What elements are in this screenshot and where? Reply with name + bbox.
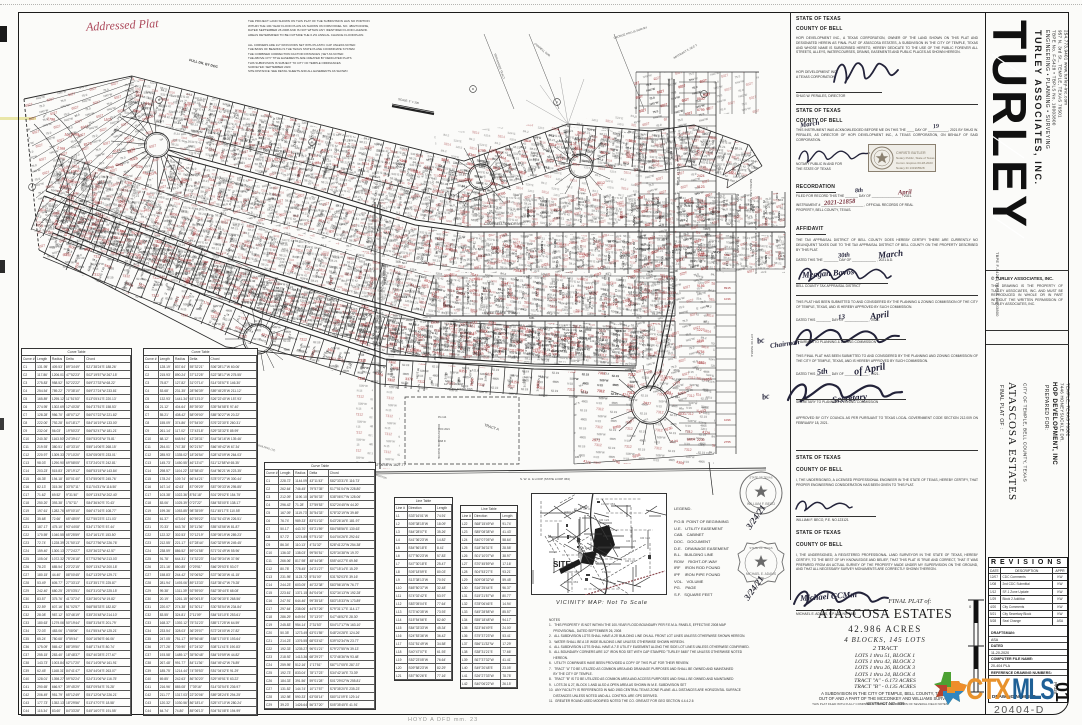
svg-text:CR 124: CR 124 (626, 539, 637, 543)
svg-text:HWY 95: HWY 95 (564, 510, 575, 514)
svg-text:OLD HWY: OLD HWY (578, 546, 592, 550)
svg-text:Notary ID 131965528: Notary ID 131965528 (896, 166, 925, 170)
svg-text:THE BASIS OF BEARING IS THE TE: THE BASIS OF BEARING IS THE TEXAS STATE … (248, 47, 355, 51)
svg-text:CAB D: CAB D (438, 440, 446, 443)
svg-text:FM 93: FM 93 (602, 570, 611, 574)
svg-text:30x40 DE: 30x40 DE (437, 448, 440, 459)
svg-text:PG 114: PG 114 (438, 416, 447, 419)
svg-text:CR 124: CR 124 (625, 559, 636, 563)
svg-text:TRACT A: TRACT A (484, 423, 500, 432)
svg-text:FM 93: FM 93 (580, 505, 589, 509)
svg-text:CR 124: CR 124 (640, 536, 651, 540)
svg-text:TURLEY: TURLEY (988, 20, 1030, 230)
svg-text:CR 124: CR 124 (599, 518, 610, 522)
svg-text:8915: 8915 (724, 286, 731, 290)
svg-text:DOC 2021: DOC 2021 (438, 428, 450, 431)
svg-text:THE ABOVE CITY TITLE EASEMENTS: THE ABOVE CITY TITLE EASEMENTS ARE CREAT… (248, 56, 352, 60)
svg-text:CITY OF TEMPLE: CITY OF TEMPLE (750, 334, 754, 357)
svg-text:SITE DISTANCE: SEE DETAIL SHEE: SITE DISTANCE: SEE DETAIL SHEETS AND ALL… (248, 69, 347, 73)
svg-text:LOOP 363: LOOP 363 (565, 570, 579, 574)
svg-text:FULL DR. BY DOC: FULL DR. BY DOC (189, 58, 219, 69)
svg-text:CTX: CTX (966, 671, 1011, 705)
svg-text:Notary Public, State of Texas: Notary Public, State of Texas (896, 156, 935, 160)
svg-text:THE PROJECT LAND SHOWN ON THIS: THE PROJECT LAND SHOWN ON THIS PLAT OF T… (248, 19, 370, 23)
svg-text:1036: 1036 (724, 297, 731, 301)
svg-text:MLS: MLS (1012, 671, 1054, 705)
svg-text:STATE OF TEXAS: STATE OF TEXAS (749, 546, 772, 550)
svg-text:S. W. H. & LOOP (STATE LOOP 36: S. W. H. & LOOP (STATE LOOP 363) (520, 477, 570, 481)
svg-text:2755: 2755 (724, 440, 731, 444)
svg-text:LOOP 363: LOOP 363 (601, 502, 615, 506)
svg-text:SCALE: 1" = 100: SCALE: 1" = 100 (398, 97, 420, 105)
svg-text:STATE OF TEXAS: STATE OF TEXAS (749, 476, 772, 480)
svg-text:Comm. Expires 03-28-2023: Comm. Expires 03-28-2023 (896, 161, 933, 165)
svg-text:ABSTRACT 5, SEC 2: ABSTRACT 5, SEC 2 (673, 43, 699, 60)
svg-text:1096: 1096 (724, 418, 731, 422)
svg-text:C: C (556, 100, 559, 104)
svg-text:LOOP 363: LOOP 363 (564, 580, 578, 584)
svg-text:DATED SEPTEMBER 26 2008 AND IS: DATED SEPTEMBER 26 2008 AND IS NOT WITHI… (248, 28, 368, 32)
svg-text:0: 0 (969, 604, 972, 609)
svg-text:AREAS DETERMINED TO BE OUTSIDE: AREAS DETERMINED TO BE OUTSIDE THE 0.2% … (248, 33, 364, 37)
svg-text:CHRISTI BUTLER: CHRISTI BUTLER (896, 151, 926, 155)
svg-text:FM 93: FM 93 (595, 561, 604, 565)
svg-text:D: D (472, 87, 475, 91)
svg-text:8381: 8381 (529, 317, 535, 320)
svg-text:REMAINDER TRACT: REMAINDER TRACT (493, 53, 506, 80)
svg-text:GEORGE HOLLIS SURVEY: GEORGE HOLLIS SURVEY (613, 25, 648, 40)
svg-text:SITE: SITE (553, 560, 571, 569)
svg-text:CONNELL SUR.: CONNELL SUR. (533, 42, 551, 58)
